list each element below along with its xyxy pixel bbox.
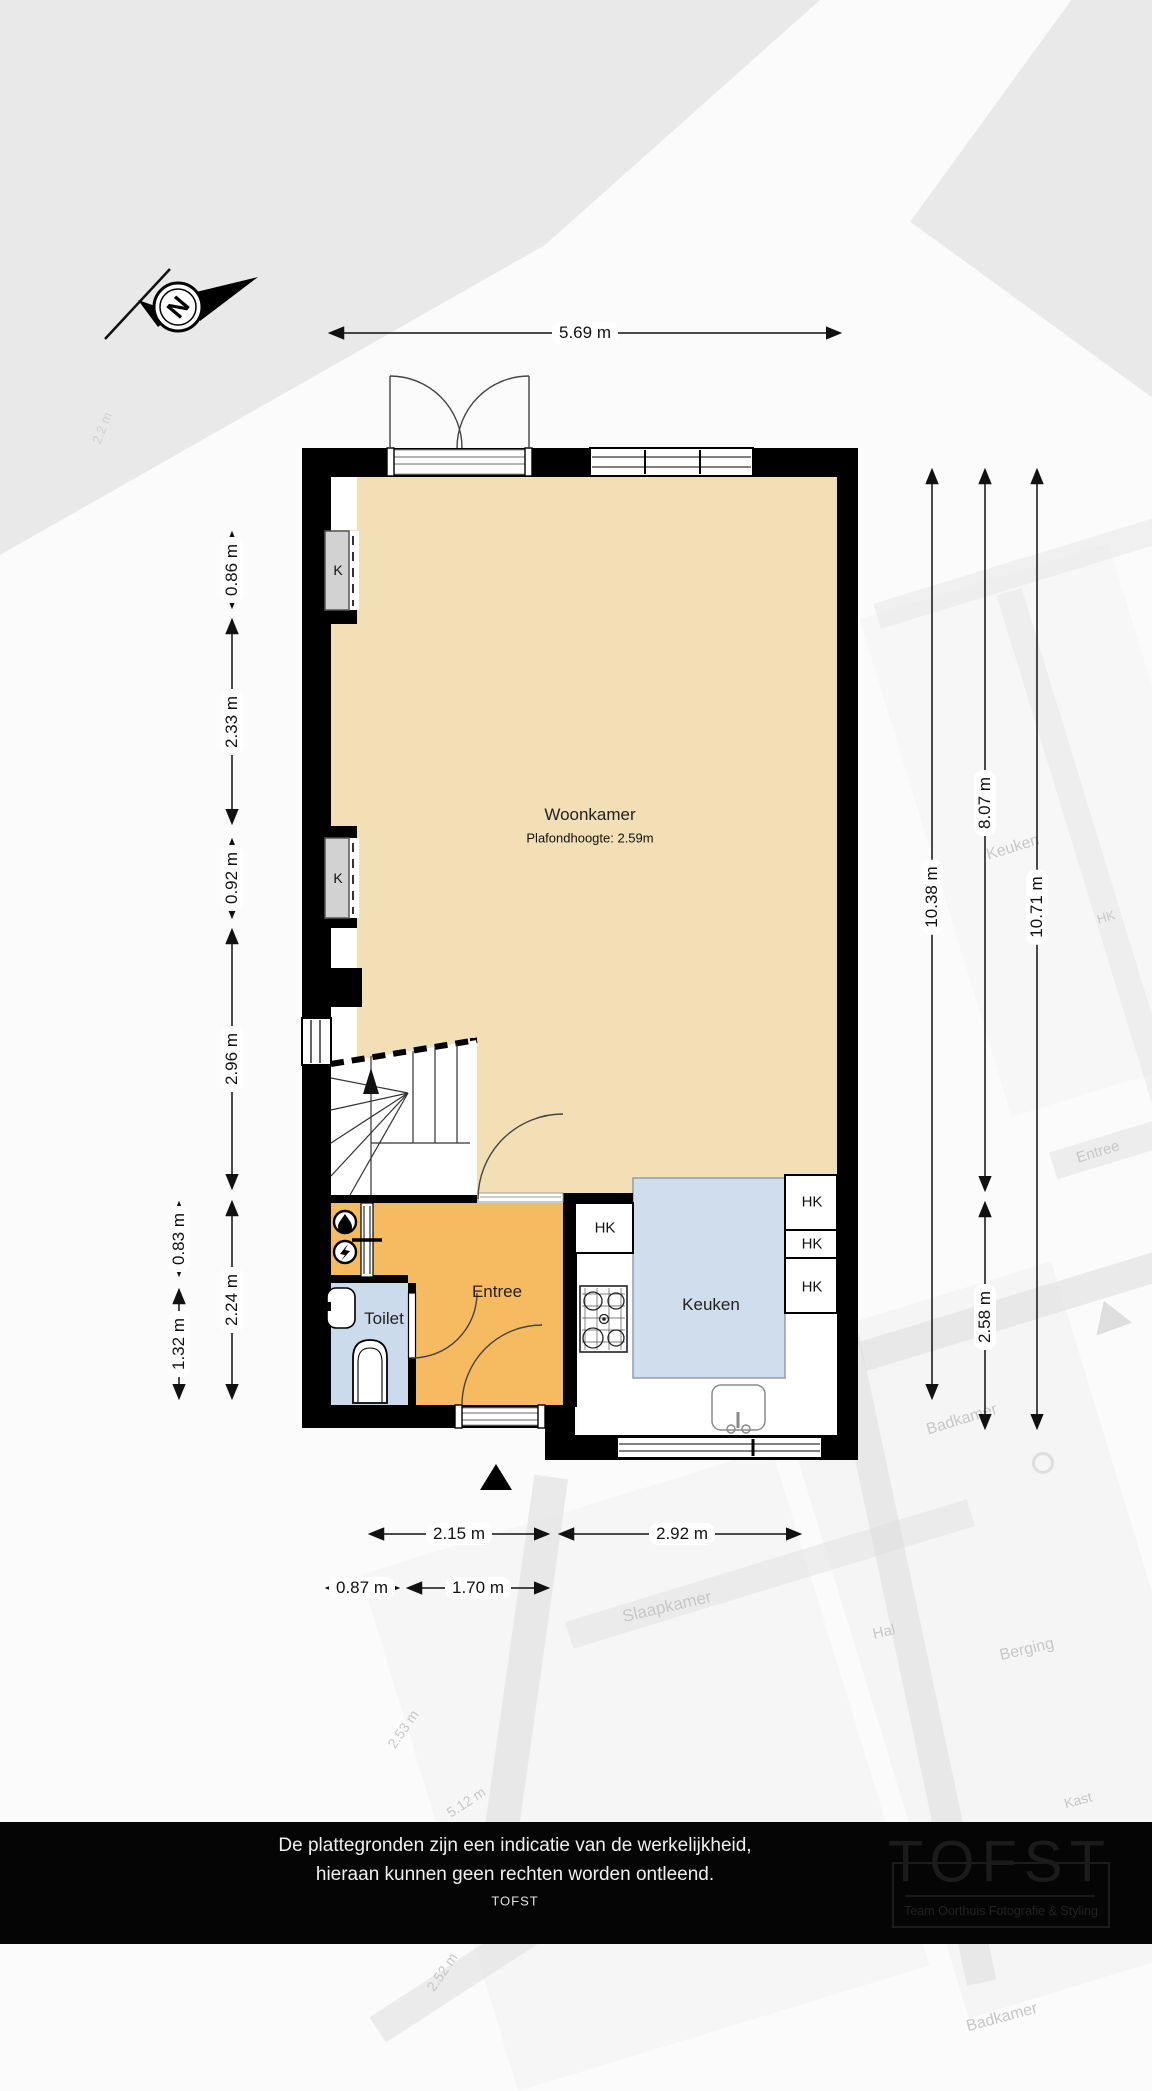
dim-label-top: 5.69 m (552, 322, 618, 344)
dim-label-bottom3: 0.87 m (329, 1577, 395, 1599)
floorplan-page: { "compass": { "letter": "N" }, "rooms":… (0, 0, 1152, 2048)
disclaimer-bar: De plattegronden zijn een indicatie van … (0, 1822, 1152, 1944)
left-window (302, 1018, 331, 1065)
room-label-keuken: Keuken (682, 1295, 740, 1315)
staircase (331, 1040, 477, 1195)
room-label-toilet: Toilet (364, 1309, 404, 1329)
dim-label-left4: 2.96 m (221, 1026, 243, 1092)
stove-icon (580, 1286, 627, 1352)
disclaimer-brand: TOFST (491, 1894, 538, 1909)
dim-label-bottom4: 1.70 m (445, 1577, 511, 1599)
disclaimer-line2: hieraan kunnen geen rechten worden ontle… (316, 1864, 714, 1886)
dim-label-bottom1: 2.15 m (426, 1523, 492, 1545)
hk-label-right3: HK (802, 1279, 823, 1296)
kitchen-window (617, 1437, 822, 1458)
disclaimer-line1: De plattegronden zijn een indicatie van … (278, 1835, 751, 1857)
dim-label-left3: 0.92 m (221, 845, 243, 911)
tofst-logo-subtitle: Team Oorthuis Fotografie & Styling (904, 1904, 1098, 1918)
dim-label-left-outer1: 0.83 m (168, 1206, 190, 1272)
hk-label-right1: HK (802, 1194, 823, 1211)
ceiling-height-note: Plafondhoogte: 2.59m (526, 831, 653, 846)
dim-label-left1: 0.86 m (221, 537, 243, 603)
hand-basin-icon (327, 1288, 355, 1328)
dim-label-left5: 2.24 m (221, 1267, 243, 1333)
dim-label-right-258: 2.58 m (974, 1284, 996, 1350)
top-window (590, 448, 753, 476)
room-label-woonkamer: Woonkamer (544, 805, 635, 825)
dim-label-left2: 2.33 m (221, 689, 243, 755)
tofst-logo-title: TOFST (888, 1829, 1112, 1896)
dim-label-right-807: 8.07 m (974, 770, 996, 836)
floor-plan-svg: N (0, 0, 1152, 2048)
closet-label-k1: K (333, 562, 342, 578)
closet-label-k2: K (333, 870, 342, 886)
compass-rose: N (105, 269, 258, 339)
hk-label-left: HK (595, 1220, 616, 1237)
dim-label-left-outer2: 1.32 m (168, 1311, 190, 1377)
dim-label-right-1071: 10.71 m (1026, 869, 1048, 944)
room-label-entree: Entree (472, 1282, 522, 1302)
dim-label-right-1038: 10.38 m (921, 859, 943, 934)
dim-label-bottom2: 2.92 m (649, 1523, 715, 1545)
hk-label-right2: HK (802, 1236, 823, 1253)
entrance-marker (480, 1464, 512, 1490)
french-door-swing (390, 376, 529, 448)
